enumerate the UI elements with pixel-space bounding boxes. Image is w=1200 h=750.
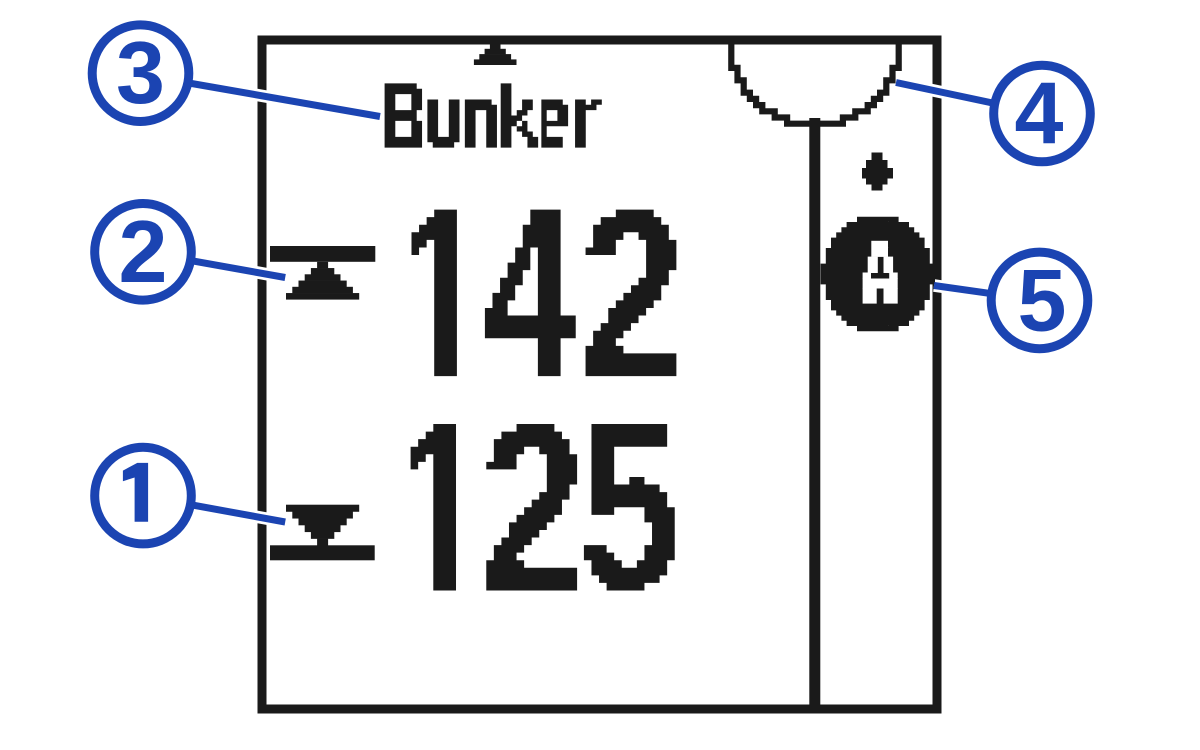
svg-text:4: 4 [1015, 64, 1064, 163]
svg-text:2: 2 [119, 202, 168, 301]
svg-text:3: 3 [116, 23, 165, 122]
svg-text:5: 5 [1018, 250, 1067, 349]
